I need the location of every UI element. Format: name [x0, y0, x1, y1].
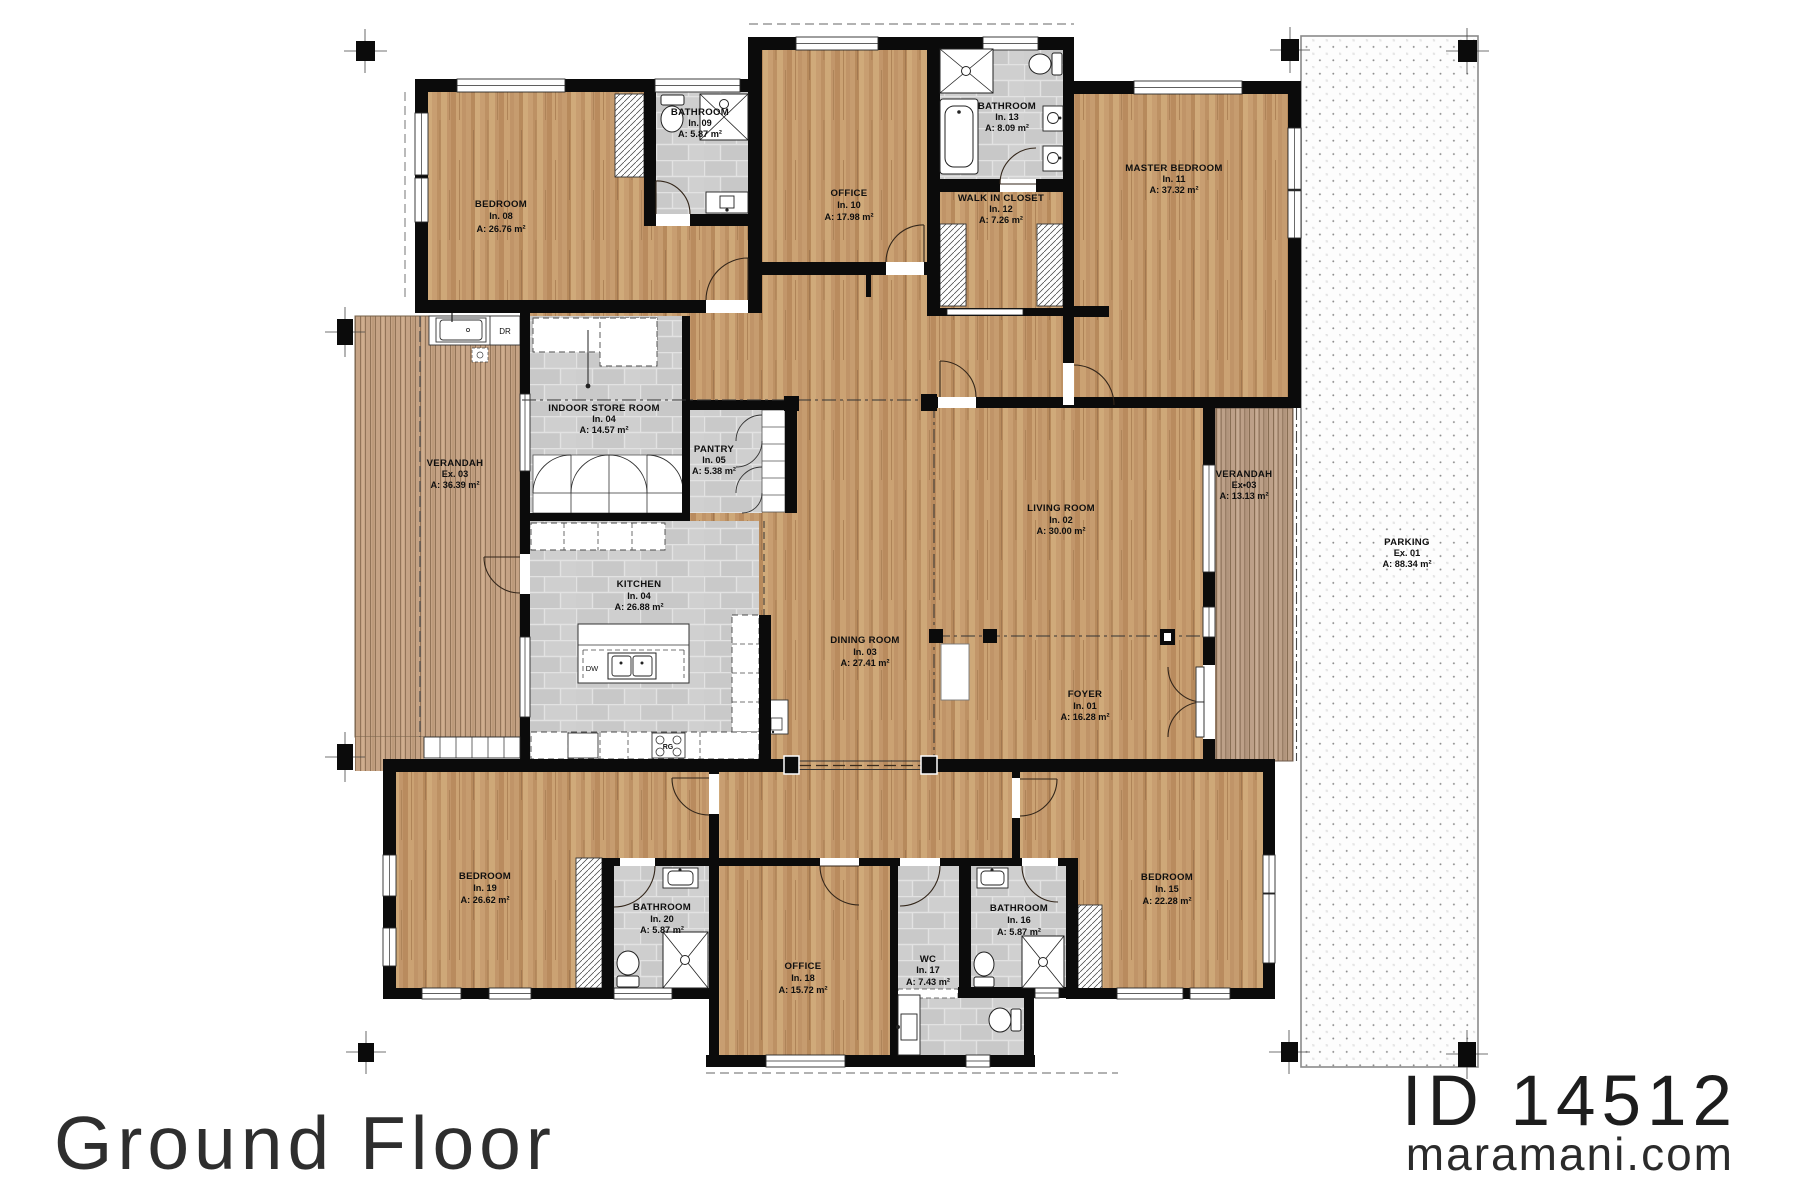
svg-text:A: 26.76 m²: A: 26.76 m²	[476, 224, 525, 234]
svg-text:RG: RG	[663, 744, 674, 751]
svg-text:A: 5.87 m²: A: 5.87 m²	[678, 129, 722, 139]
svg-text:A: 30.00 m²: A: 30.00 m²	[1036, 526, 1085, 536]
svg-text:In. 19: In. 19	[473, 883, 497, 893]
svg-text:A: 5.87 m²: A: 5.87 m²	[997, 927, 1041, 937]
svg-text:A: 7.43 m²: A: 7.43 m²	[906, 977, 950, 987]
svg-text:WC: WC	[920, 954, 937, 965]
svg-text:BATHROOM: BATHROOM	[671, 107, 729, 118]
svg-text:A: 22.28 m²: A: 22.28 m²	[1142, 896, 1191, 906]
svg-text:In. 01: In. 01	[1073, 701, 1097, 711]
svg-text:A: 26.62 m²: A: 26.62 m²	[460, 895, 509, 905]
svg-text:FOYER: FOYER	[1068, 689, 1103, 700]
svg-text:In. 17: In. 17	[916, 965, 940, 975]
svg-text:A: 7.26 m²: A: 7.26 m²	[979, 215, 1023, 225]
svg-text:Ex. 01: Ex. 01	[1394, 548, 1421, 558]
svg-text:PARKING: PARKING	[1384, 537, 1430, 548]
svg-text:Ex. 03: Ex. 03	[442, 469, 469, 479]
svg-text:In. 08: In. 08	[489, 211, 513, 221]
svg-text:A: 27.41 m²: A: 27.41 m²	[840, 658, 889, 668]
svg-text:In. 11: In. 11	[1163, 174, 1186, 184]
svg-text:A: 15.72 m²: A: 15.72 m²	[778, 985, 827, 995]
svg-text:A: 5.87 m²: A: 5.87 m²	[640, 925, 684, 935]
svg-text:BEDROOM: BEDROOM	[1141, 872, 1193, 883]
svg-text:A: 37.32 m²: A: 37.32 m²	[1149, 185, 1198, 195]
svg-text:In. 10: In. 10	[837, 200, 861, 210]
svg-text:In. 04: In. 04	[627, 591, 651, 601]
svg-text:In. 09: In. 09	[688, 118, 712, 128]
svg-text:DINING ROOM: DINING ROOM	[830, 635, 899, 646]
svg-text:BATHROOM: BATHROOM	[633, 902, 691, 913]
svg-text:Ex•03: Ex•03	[1232, 480, 1257, 490]
svg-text:VERANDAH: VERANDAH	[1216, 469, 1273, 480]
svg-text:A: 5.38 m²: A: 5.38 m²	[692, 466, 736, 476]
svg-text:In. 02: In. 02	[1049, 515, 1073, 525]
svg-text:DW: DW	[586, 664, 599, 673]
svg-text:BEDROOM: BEDROOM	[459, 871, 511, 882]
svg-text:A: 16.28 m²: A: 16.28 m²	[1060, 712, 1109, 722]
svg-text:BATHROOM: BATHROOM	[978, 101, 1036, 112]
svg-text:A: 8.09 m²: A: 8.09 m²	[985, 123, 1029, 133]
svg-text:A: 26.88 m²: A: 26.88 m²	[614, 602, 663, 612]
svg-text:LIVING ROOM: LIVING ROOM	[1027, 503, 1095, 514]
svg-text:DR: DR	[499, 327, 511, 336]
svg-text:MASTER BEDROOM: MASTER BEDROOM	[1125, 163, 1222, 174]
svg-text:In. 15: In. 15	[1155, 884, 1179, 894]
svg-text:A: 17.98 m²: A: 17.98 m²	[824, 212, 873, 222]
svg-text:A: 36.39 m²: A: 36.39 m²	[430, 480, 479, 490]
svg-text:In. 03: In. 03	[853, 647, 877, 657]
svg-text:In. 12: In. 12	[989, 204, 1013, 214]
svg-text:OFFICE: OFFICE	[831, 188, 868, 199]
svg-text:BATHROOM: BATHROOM	[990, 903, 1048, 914]
svg-text:VERANDAH: VERANDAH	[427, 458, 484, 469]
svg-text:In. 04: In. 04	[592, 414, 616, 424]
svg-text:PANTRY: PANTRY	[694, 444, 734, 455]
svg-text:KITCHEN: KITCHEN	[617, 579, 662, 590]
svg-text:OFFICE: OFFICE	[785, 961, 822, 972]
svg-text:In. 13: In. 13	[995, 112, 1019, 122]
svg-text:In. 16: In. 16	[1007, 915, 1031, 925]
svg-text:A: 13.13 m²: A: 13.13 m²	[1219, 491, 1268, 501]
svg-text:A: 88.34 m²: A: 88.34 m²	[1382, 559, 1431, 569]
svg-text:In. 20: In. 20	[650, 914, 674, 924]
svg-text:A: 14.57 m²: A: 14.57 m²	[579, 425, 628, 435]
svg-text:INDOOR STORE ROOM: INDOOR STORE ROOM	[548, 403, 660, 414]
svg-text:In. 05: In. 05	[702, 455, 726, 465]
svg-text:BEDROOM: BEDROOM	[475, 199, 527, 210]
svg-text:WALK IN CLOSET: WALK IN CLOSET	[958, 193, 1044, 204]
svg-text:In. 18: In. 18	[791, 973, 815, 983]
